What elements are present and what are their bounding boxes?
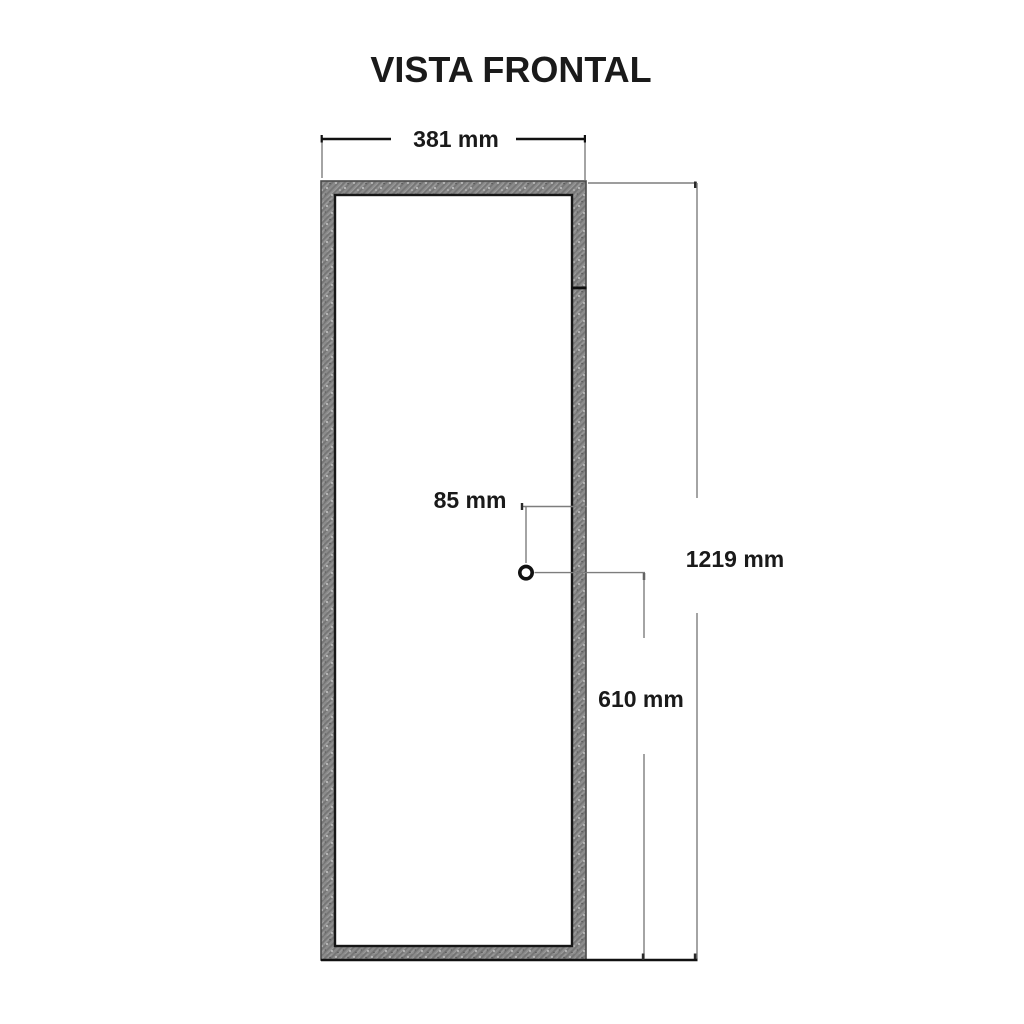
svg-text:85 mm: 85 mm — [434, 487, 507, 513]
svg-text:VISTA FRONTAL: VISTA FRONTAL — [370, 49, 651, 90]
svg-text:610 mm: 610 mm — [598, 686, 684, 712]
svg-text:1219 mm: 1219 mm — [686, 546, 784, 572]
svg-text:381 mm: 381 mm — [413, 126, 499, 152]
